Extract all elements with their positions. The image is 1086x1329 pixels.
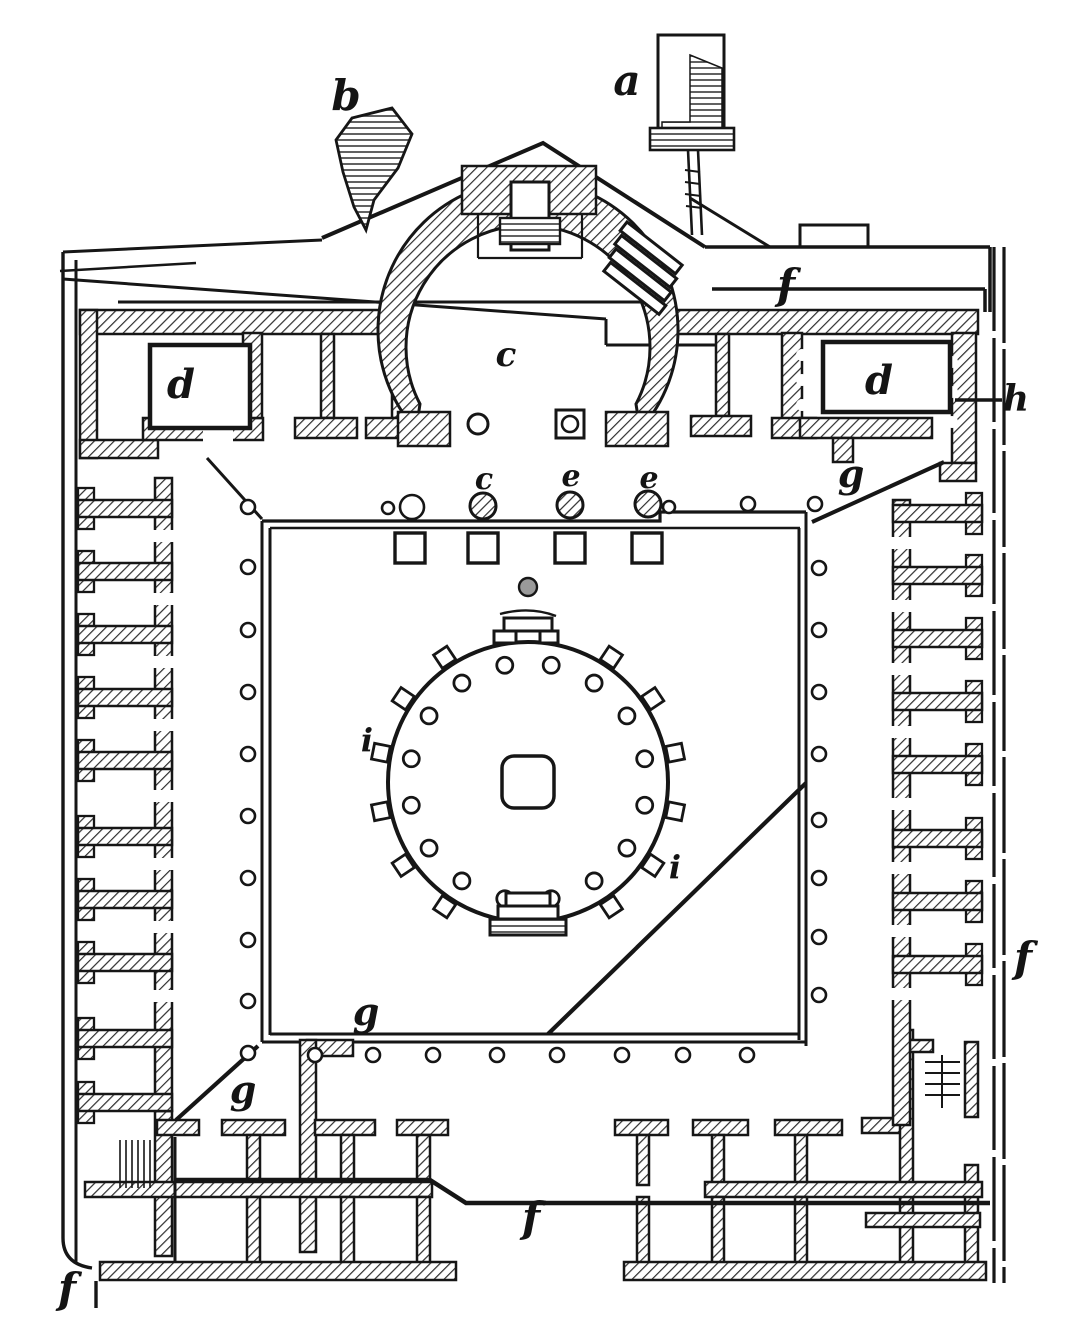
plan-label-g-bottom: g (353, 989, 380, 1034)
plan-label-g-corner: g (230, 1067, 257, 1112)
apse-statue-base-round (468, 414, 488, 434)
plan-label-b: b (331, 71, 360, 120)
plan-label-c-base: c (475, 462, 493, 497)
plan-label-i-left: i (361, 721, 373, 759)
plan-label-i-right: i (669, 848, 681, 886)
plan-label-g-right: g (838, 451, 865, 496)
plan-label-h: h (1003, 378, 1029, 420)
apse-altar (500, 218, 560, 244)
plan-label-e-base-1: e (561, 459, 580, 494)
plan-label-d-right: d (865, 357, 893, 404)
plan-label-c-apse: c (496, 335, 517, 375)
plan-label-a: a (613, 56, 640, 105)
plan-label-e-base-2: e (639, 461, 658, 496)
engraving-page: abcceeddffffggghii (0, 0, 1086, 1329)
floor-plan: abcceeddffffggghii (0, 0, 1086, 1329)
d-room-left-outline (150, 345, 250, 428)
plan-label-d-left: d (167, 361, 195, 408)
tholos-central-base (502, 756, 554, 808)
